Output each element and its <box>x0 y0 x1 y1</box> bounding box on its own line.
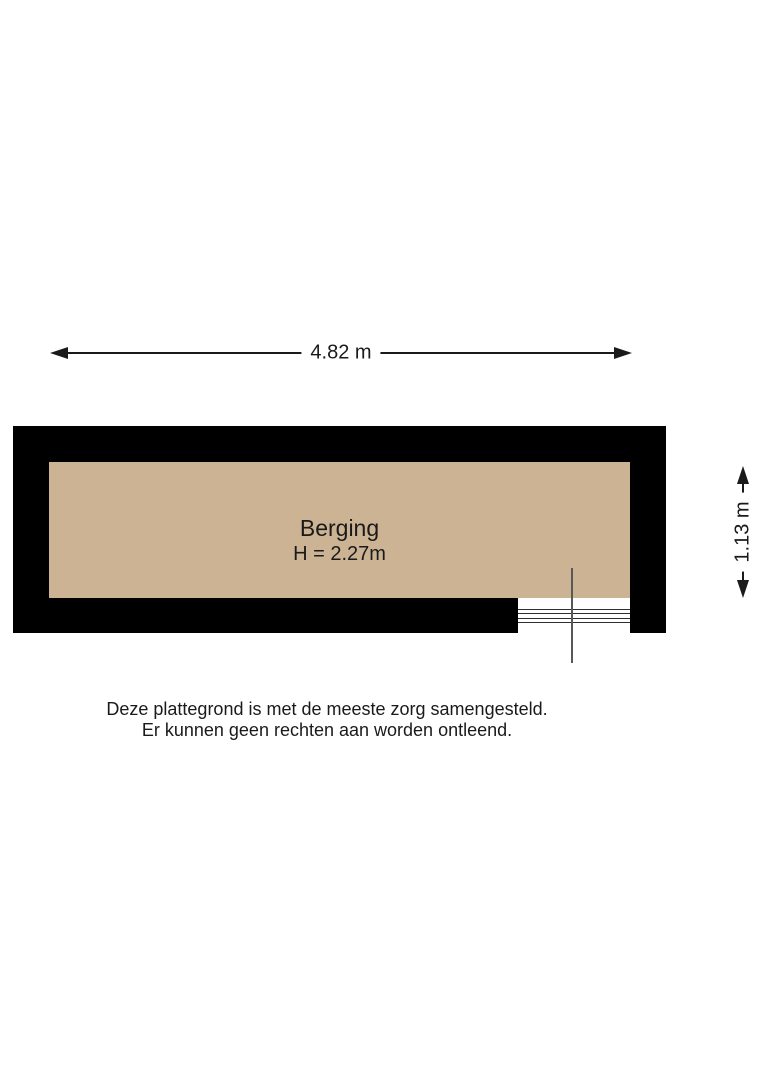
door-opening <box>518 598 630 633</box>
arrowhead-up-icon <box>737 466 749 484</box>
arrowhead-right-icon <box>614 347 632 359</box>
room-height-label: H = 2.27m <box>49 543 630 565</box>
door-section-line <box>571 568 573 663</box>
door-threshold-line <box>518 622 630 623</box>
width-dimension-label: 4.82 m <box>301 342 380 365</box>
room-floor: Berging H = 2.27m <box>49 462 630 598</box>
door-threshold-line <box>518 613 630 614</box>
disclaimer-line-2: Er kunnen geen rechten aan worden ontlee… <box>106 720 547 741</box>
door-threshold-line <box>518 618 630 619</box>
room-label-block: Berging H = 2.27m <box>49 515 630 565</box>
depth-dimension-label: 1.13 m <box>732 492 755 571</box>
disclaimer-line-1: Deze plattegrond is met de meeste zorg s… <box>106 699 547 720</box>
floorplan-page: 4.82 m Berging H = 2.27m 1.13 m Deze pla… <box>0 0 768 1086</box>
disclaimer: Deze plattegrond is met de meeste zorg s… <box>106 699 547 741</box>
depth-dimension: 1.13 m <box>734 466 752 598</box>
arrowhead-left-icon <box>50 347 68 359</box>
room-label: Berging <box>49 515 630 541</box>
door-threshold-line <box>518 609 630 610</box>
width-dimension: 4.82 m <box>50 342 632 364</box>
arrowhead-down-icon <box>737 580 749 598</box>
